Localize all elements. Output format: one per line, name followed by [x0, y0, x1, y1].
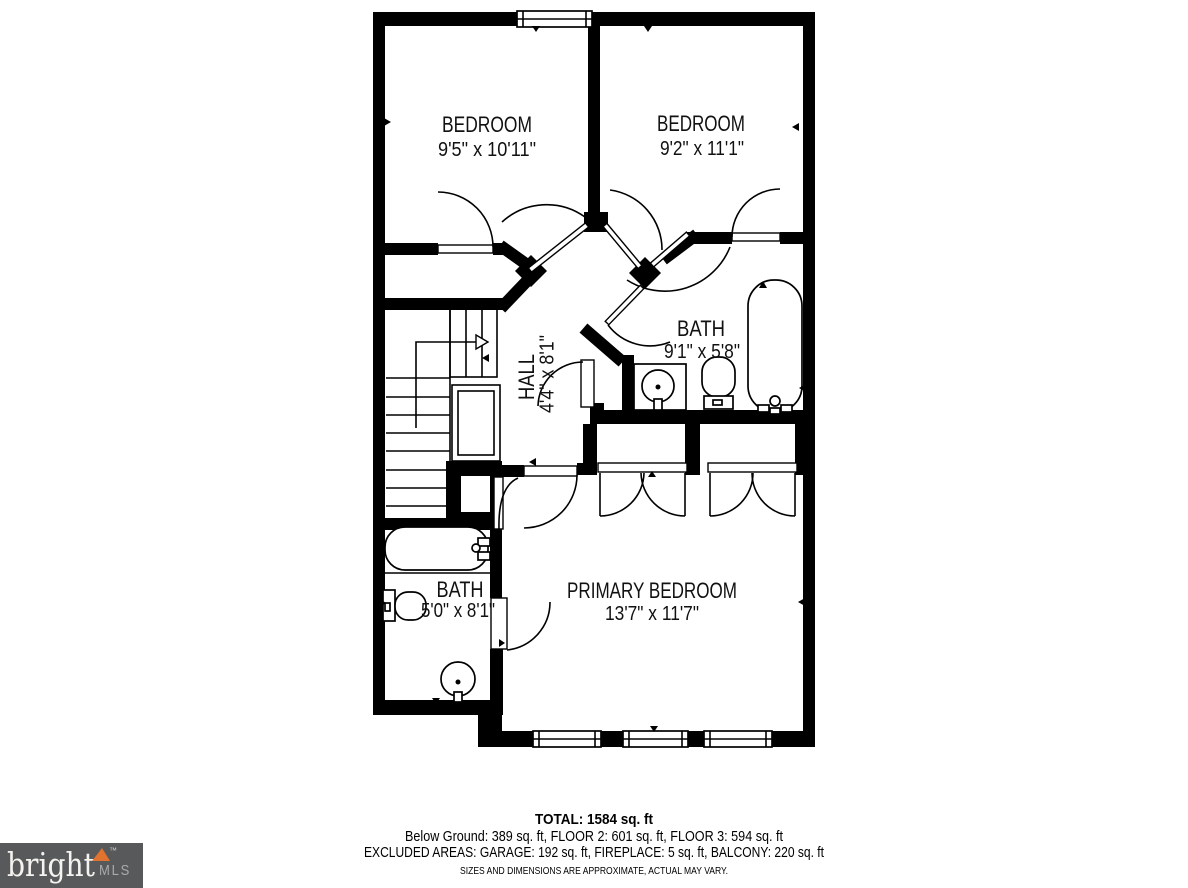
logo-trademark: ™ — [109, 846, 117, 855]
room-name: BATH — [677, 316, 725, 341]
window — [704, 731, 772, 747]
disclaimer-text: SIZES AND DIMENSIONS ARE APPROXIMATE, AC… — [460, 865, 728, 877]
room-dimensions: 9'1" x 5'8" — [664, 341, 740, 363]
room-name: BEDROOM — [657, 111, 745, 136]
bathtub — [748, 280, 802, 414]
door — [603, 190, 662, 269]
sink — [441, 662, 475, 702]
room-name: PRIMARY BEDROOM — [567, 578, 737, 603]
room-dimensions: 9'5" x 10'11" — [438, 139, 536, 161]
logo-brand-text: bright — [7, 845, 95, 884]
floor-plan-page: BEDROOM 9'5" x 10'11" BEDROOM 9'2" x 11'… — [0, 0, 1188, 888]
window — [623, 731, 688, 747]
floor-areas-text: Below Ground: 389 sq. ft, FLOOR 2: 601 s… — [405, 829, 783, 845]
brightmls-logo: bright ™ MLS — [0, 843, 143, 888]
room-dimensions: 4'4" x 8'1" — [536, 335, 558, 413]
stair-treads — [386, 378, 450, 506]
room-name: BEDROOM — [442, 112, 532, 137]
room-name: HALL — [514, 354, 539, 400]
toilet — [383, 590, 426, 621]
room-dimensions: 9'2" x 11'1" — [660, 138, 744, 160]
floor-plan-canvas: BEDROOM 9'5" x 10'11" BEDROOM 9'2" x 11'… — [0, 0, 1188, 888]
toilet — [702, 357, 735, 409]
room-dimensions: 13'7" x 11'7" — [605, 603, 699, 625]
bathtub — [380, 527, 493, 573]
room-dimensions: 5'0" x 8'1" — [421, 600, 495, 622]
window — [533, 731, 601, 747]
window — [517, 11, 592, 27]
logo-suffix-text: MLS — [99, 862, 131, 879]
room-name: BATH — [437, 577, 484, 602]
total-area-text: TOTAL: 1584 sq. ft — [535, 811, 653, 828]
excluded-areas-text: EXCLUDED AREAS: GARAGE: 192 sq. ft, FIRE… — [364, 845, 824, 861]
footer: TOTAL: 1584 sq. ft Below Ground: 389 sq.… — [364, 811, 824, 877]
vanity-sink — [634, 364, 686, 410]
door — [605, 285, 670, 346]
door — [438, 192, 493, 253]
door — [732, 189, 780, 241]
